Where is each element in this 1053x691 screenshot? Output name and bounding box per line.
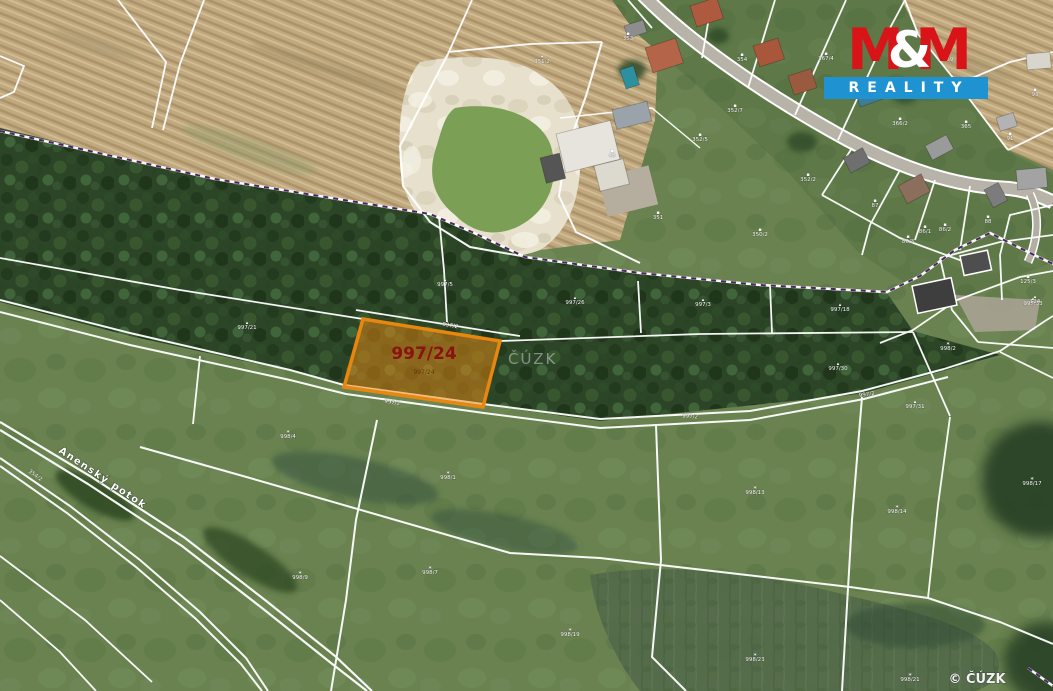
- parcel-number-text: 998/13: [745, 490, 765, 496]
- highlight-parcel-label: 997/24: [391, 344, 457, 364]
- parcel-number-text: 351/2: [534, 59, 550, 65]
- parcel-number-text: 998/2: [940, 346, 956, 352]
- parcel-number-text: 88: [985, 219, 992, 225]
- aerial-map-canvas: 997/24 997/24 ČÚZK © ČÚZK Anenský potok …: [0, 0, 1053, 691]
- parcel-number-label: 997/2: [682, 414, 698, 421]
- parcel-number-text: 998/1: [440, 475, 456, 481]
- logo-ampersand: &: [888, 27, 925, 73]
- parcel-number-text: 125/3: [1020, 279, 1036, 285]
- parcel-number-text: 997/18: [830, 307, 850, 313]
- parcel-number-text: 86/1: [919, 229, 931, 235]
- cuzk-watermark: ČÚZK: [508, 349, 557, 368]
- parcel-number-text: 354: [737, 57, 748, 63]
- building: [1016, 167, 1048, 190]
- logo-mm-wordmark: M & M: [824, 24, 988, 76]
- cuzk-copyright: © ČÚZK: [948, 671, 1006, 687]
- parcel-number-text: 365: [961, 124, 972, 130]
- parcel-number-text: 998/4: [280, 434, 296, 440]
- parcel-number-text: 998/23: [745, 657, 765, 663]
- parcel-number-text: 353: [623, 36, 634, 42]
- parcel-number-text: 998/17: [1022, 481, 1042, 487]
- parcel-number-text: 87: [872, 203, 879, 209]
- parcel-number-text: 86/3: [902, 239, 915, 245]
- parcel-number-text: 91: [1007, 136, 1014, 142]
- logo-reality-bar: REALITY: [824, 77, 988, 99]
- parcel-number-text: 998/19: [560, 632, 580, 638]
- parcel-number-text: 86/2: [939, 227, 951, 233]
- parcel-number-text: 997/3: [695, 302, 711, 308]
- cadastral-map: 997/24 997/24 ČÚZK © ČÚZK Anenský potok …: [0, 0, 1053, 691]
- parcel-number-text: 998/9: [292, 575, 308, 581]
- parcel-number-text: 124: [1030, 299, 1041, 305]
- parcel-number-text: 997/30: [828, 366, 848, 372]
- parcel-number-text: 997/31: [905, 404, 924, 410]
- mm-reality-logo: M & M REALITY: [824, 24, 988, 99]
- parcel-number-text: 998/21: [900, 677, 919, 683]
- building: [1026, 52, 1051, 70]
- parcel-number-text: 997/26: [565, 300, 585, 306]
- parcel-number-text: 366/2: [892, 121, 908, 127]
- highlight-parcel-sublabel: 997/24: [413, 369, 434, 376]
- parcel-number-text: 997/5: [437, 282, 453, 288]
- parcel-number-text: 352/5: [692, 137, 708, 143]
- parcel-number-text: 351: [653, 215, 664, 221]
- parcel-number-text: 352/7: [727, 108, 743, 114]
- parcel-number-text: 997/21: [237, 325, 256, 331]
- parcel-number-text: 350/2: [752, 232, 768, 238]
- parcel-number-text: 48: [609, 153, 616, 159]
- parcel-number-text: 998/14: [887, 509, 907, 515]
- parcel-number-text: 352/2: [800, 177, 816, 183]
- parcel-number-text: 997/2: [682, 414, 698, 421]
- parcel-number-text: 93: [1032, 92, 1039, 98]
- parcel-number-text: 998/7: [422, 570, 438, 576]
